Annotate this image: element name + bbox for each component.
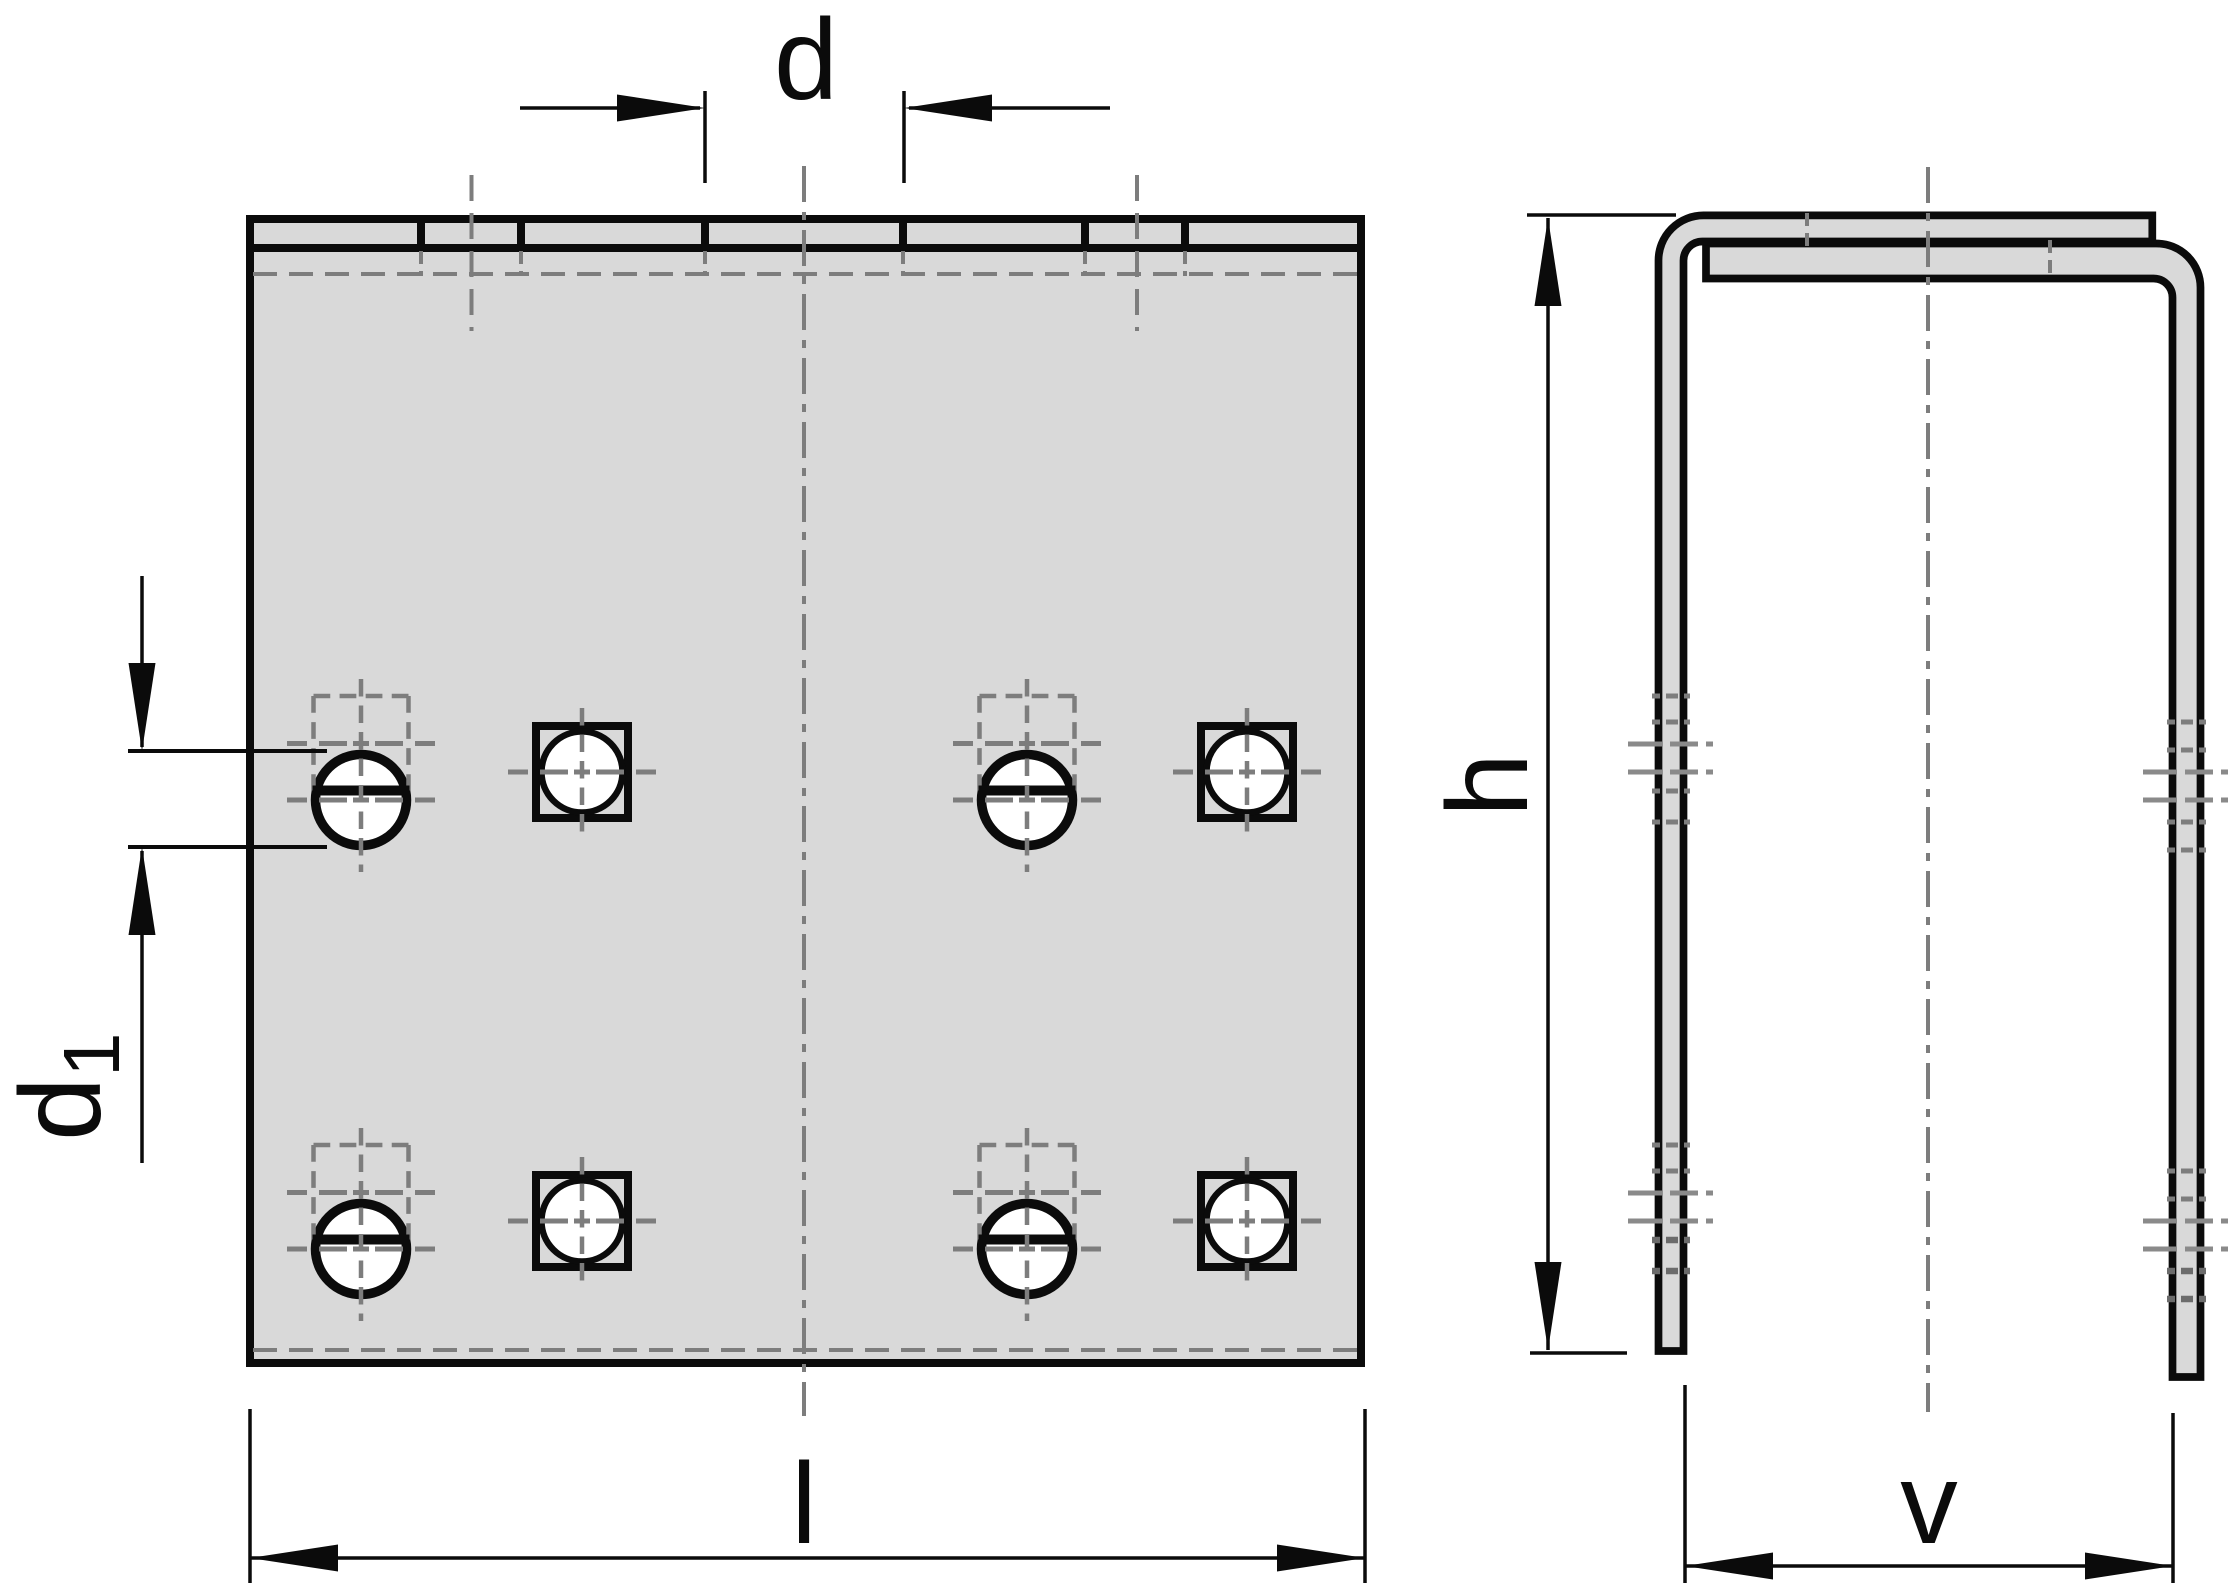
svg-text:d1: d1 [0, 1033, 136, 1141]
svg-text:l: l [791, 1440, 817, 1568]
svg-text:h: h [1424, 753, 1552, 817]
svg-text:v: v [1900, 1440, 1958, 1568]
svg-text:d: d [774, 0, 838, 124]
